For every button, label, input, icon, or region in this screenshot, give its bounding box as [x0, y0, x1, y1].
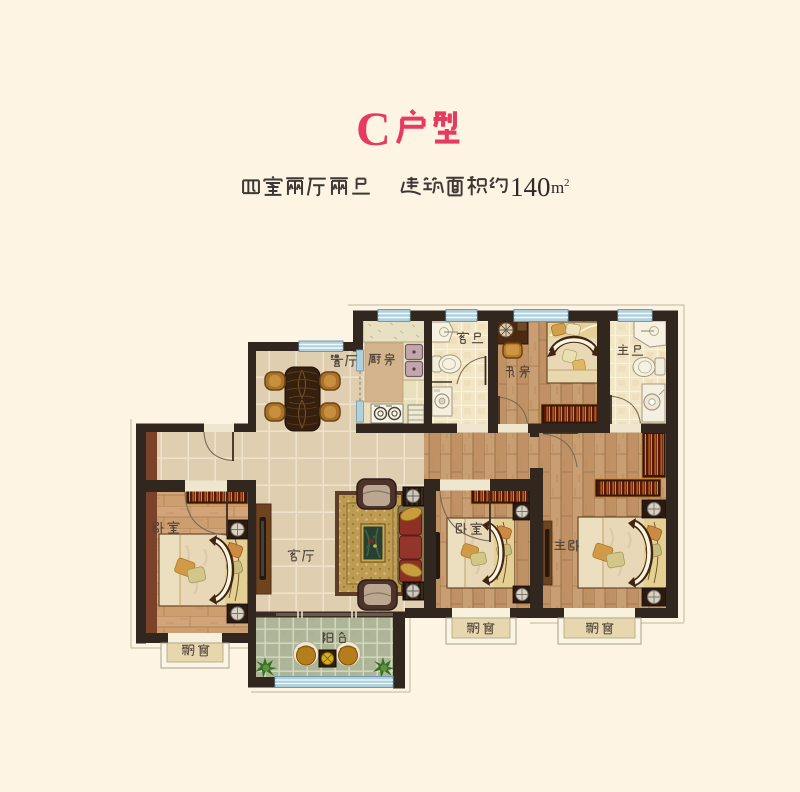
- svg-text:140: 140: [510, 172, 551, 202]
- svg-text:m: m: [551, 178, 564, 197]
- svg-text:2: 2: [564, 177, 570, 189]
- svg-text:C: C: [356, 103, 391, 156]
